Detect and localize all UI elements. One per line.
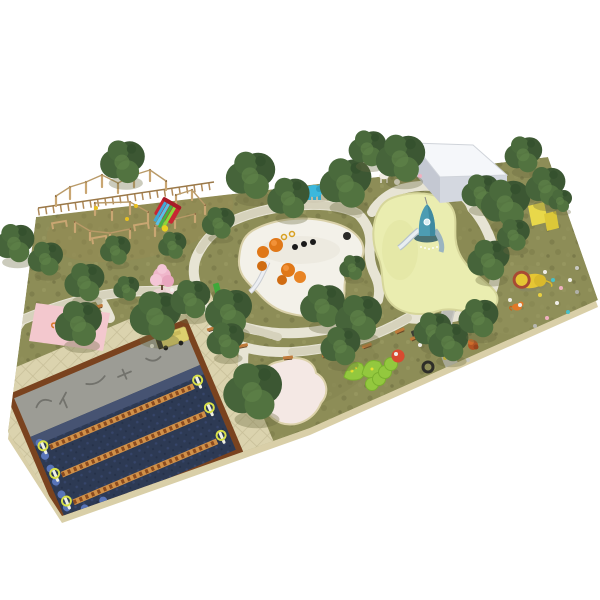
toy-dot <box>545 316 549 320</box>
stepping-pod <box>292 244 298 250</box>
toy-dot <box>134 204 138 208</box>
toy-dot <box>538 293 542 297</box>
stepping-pod <box>310 239 316 245</box>
toy-dot <box>568 278 572 282</box>
stepping-pod <box>301 241 307 247</box>
caterpillar-head <box>392 350 405 363</box>
toy-dot <box>551 278 555 282</box>
toy-dot <box>518 303 522 307</box>
toy-dot <box>575 290 579 294</box>
tree <box>100 140 145 189</box>
rocket-window <box>424 219 430 225</box>
toy-dot <box>508 298 512 302</box>
toy-dot <box>170 288 174 292</box>
playground-park-render <box>0 0 600 600</box>
toy-dot <box>543 270 547 274</box>
toy-dot <box>559 286 563 290</box>
scene-canvas <box>0 0 600 600</box>
toy-dot <box>555 301 559 305</box>
toy-dot <box>533 324 537 328</box>
toy-dot <box>566 310 570 314</box>
toy-dot <box>575 266 579 270</box>
toy-dot <box>94 206 98 210</box>
toy-dot <box>125 217 129 221</box>
